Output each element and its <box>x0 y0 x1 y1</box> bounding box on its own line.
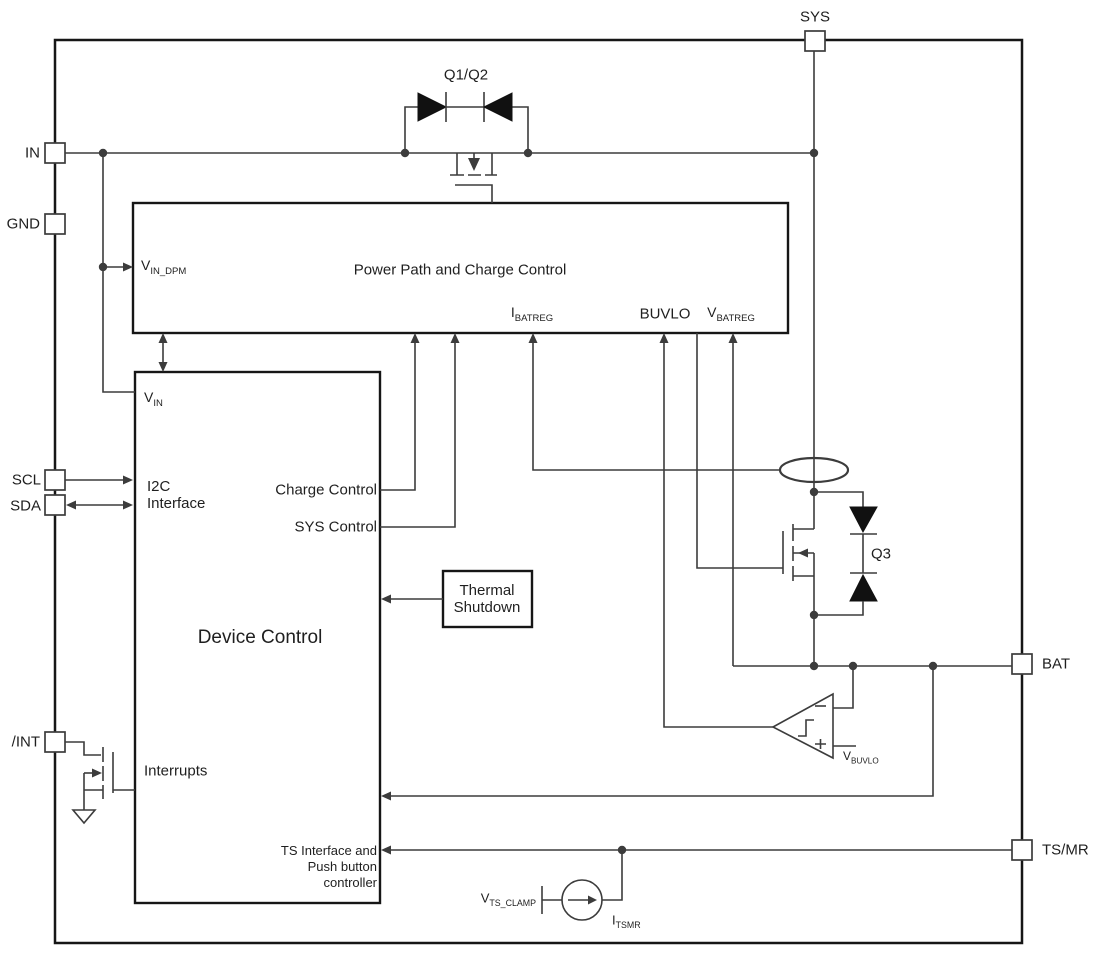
power-path-title: Power Path and Charge Control <box>354 261 567 278</box>
ts-interface-label: TS Interface and Push button controller <box>281 843 377 891</box>
pin-label-gnd: GND <box>7 215 40 232</box>
vbatreg-wire <box>729 333 738 666</box>
diagram-canvas <box>0 0 1100 953</box>
pin-scl <box>45 470 65 490</box>
int-fet-symbol <box>65 742 135 823</box>
vbuvlo-label: VBUVLO <box>843 750 879 764</box>
pin-label-bat: BAT <box>1042 655 1070 672</box>
charge-control-wire <box>380 333 420 490</box>
i2c-interface-label: I2C Interface <box>147 478 205 513</box>
vbatreg-label: VBATREG <box>707 304 755 320</box>
pin-bat <box>1012 654 1032 674</box>
q1q2-label: Q1/Q2 <box>444 66 488 83</box>
input-fet-symbol <box>450 153 497 203</box>
scl-wire <box>65 476 133 485</box>
itsmr-label: ITSMR <box>612 914 641 929</box>
pin-sda <box>45 495 65 515</box>
ibatreg-sense-wire <box>529 333 782 470</box>
q3-label: Q3 <box>871 545 891 562</box>
pin-in <box>45 143 65 163</box>
control-bus-arrow <box>159 333 168 372</box>
ibatreg-label: IBATREG <box>511 304 553 320</box>
sda-wire <box>66 501 133 510</box>
q1-q2-diodes <box>405 92 528 153</box>
pin-sys <box>805 31 825 51</box>
bat-sense-wire <box>381 666 933 801</box>
interrupts-label: Interrupts <box>144 762 207 779</box>
device-control-title: Device Control <box>198 627 323 649</box>
sys-control-label: SYS Control <box>294 518 377 535</box>
pin-label-tsmr: TS/MR <box>1042 841 1089 858</box>
pin-label-int: /INT <box>12 733 40 750</box>
tsmr-rail-wire <box>381 846 1012 855</box>
sys-control-wire <box>380 333 460 527</box>
pin-gnd <box>45 214 65 234</box>
thermal-shutdown-wire <box>381 595 443 604</box>
thermal-shutdown-label: Thermal Shutdown <box>454 582 521 617</box>
buvlo-comparator <box>773 666 856 758</box>
q3-body-diodes <box>814 492 877 615</box>
vin-label: VIN <box>144 389 163 405</box>
pin-label-in: IN <box>25 144 40 161</box>
q3-fet-symbol <box>783 524 814 666</box>
pin-label-sys: SYS <box>800 8 830 25</box>
pin-label-scl: SCL <box>12 471 41 488</box>
pin-int <box>45 732 65 752</box>
vts-clamp-label: VTS_CLAMP <box>481 892 536 907</box>
block-diagram: SYS IN GND SCL SDA /INT BAT TS/MR Q1/Q2 … <box>0 0 1100 953</box>
ts-clamp-current-source <box>542 850 622 920</box>
buvlo-label: BUVLO <box>640 305 691 322</box>
charge-control-label: Charge Control <box>275 481 377 498</box>
buvlo-wire <box>660 333 774 727</box>
ground-icon <box>73 810 95 823</box>
q3-gate-wire <box>697 333 783 568</box>
pin-label-sda: SDA <box>10 497 41 514</box>
pin-tsmr <box>1012 840 1032 860</box>
vin-dpm-label: VIN_DPM <box>141 257 186 273</box>
